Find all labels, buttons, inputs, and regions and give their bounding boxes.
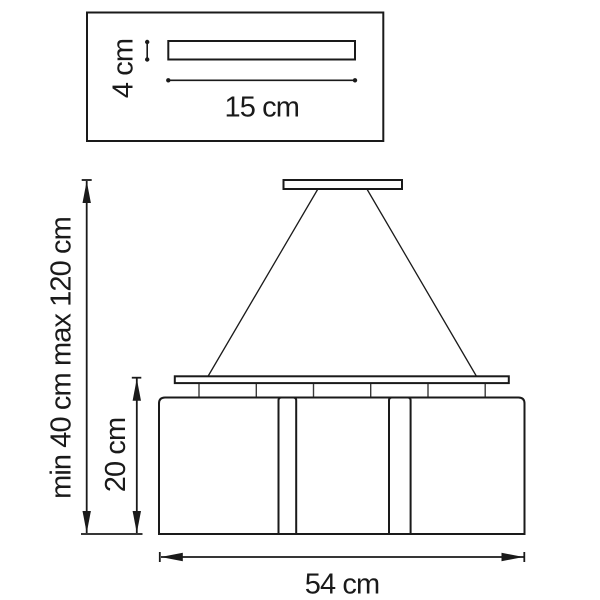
svg-text:15 cm: 15 cm bbox=[225, 92, 299, 124]
svg-text:54 cm: 54 cm bbox=[305, 569, 379, 600]
svg-text:20 cm: 20 cm bbox=[100, 418, 132, 492]
svg-text:4 cm: 4 cm bbox=[108, 39, 140, 98]
svg-text:min 40 cm max 120 cm: min 40 cm max 120 cm bbox=[46, 217, 78, 499]
